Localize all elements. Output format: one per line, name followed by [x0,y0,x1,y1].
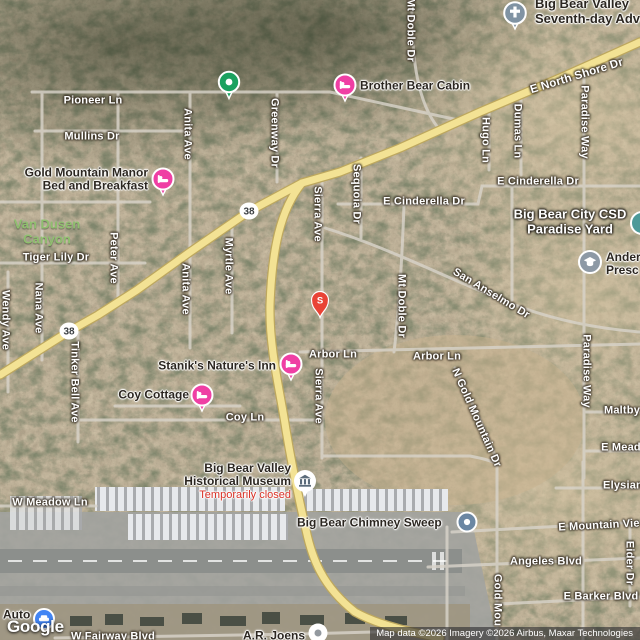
street-label-sierra-ave-s: Sierra Ave [313,368,324,424]
street-label-paradise-way-n: Paradise Way [579,85,590,159]
poi-label-staniks-natures-inn[interactable]: Stanik's Nature's Inn [158,359,276,372]
street-label-pioneer-ln: Pioneer Ln [64,96,123,107]
street-label-peter-ave: Peter Ave [108,232,119,284]
street-label-greenway-dr: Greenway Dr [269,98,280,168]
street-label-nana-ave: Nana Ave [33,283,44,334]
street-label-paradise-way-s: Paradise Way [581,334,592,408]
street-label-sierra-ave-n: Sierra Ave [312,186,323,242]
street-label-gold-mountain: Gold Mou [492,574,503,626]
airport-area [0,487,497,640]
poi-label-brother-bear-cabin[interactable]: Brother Bear Cabin [360,79,470,92]
poi-label-coy-cottage[interactable]: Coy Cottage [118,388,189,401]
chimney-sweep-dot-marker[interactable] [458,513,477,532]
street-label-angeles-blvd: Angeles Blvd [510,557,582,568]
street-label-tinker-bell-ave: Tinker Bell Ave [69,341,80,422]
street-label-mt-doble-dr-s: Mt Doble Dr [396,274,407,338]
street-label-anita-ave-s: Anita Ave [180,263,191,315]
poi-label-adventist-church[interactable]: Big Bear Valley Seventh-day Adve [535,0,640,26]
poi-label-ar-joens[interactable]: A.R. Joens [243,629,305,640]
street-label-hugo-ln: Hugo Ln [480,117,491,163]
street-label-e-cinderella-dr-e: E Cinderella Dr [497,177,579,188]
street-label-arbor-ln-e: Arbor Ln [413,352,461,363]
street-label-coy-ln: Coy Ln [226,413,264,424]
attribution-bar: Map data ©2026 Imagery ©2026 Airbus, Max… [370,627,640,640]
street-label-sequoia-dr: Sequoia Dr [351,164,362,224]
street-label-mullins-dr: Mullins Dr [64,132,119,143]
hangar-row [298,489,448,511]
street-label-dumas-ln: Dumas Ln [512,104,523,159]
street-label-mt-doble-dr-n: Mt Doble Dr [405,0,416,62]
street-label-eider-dr: Eider Dr [624,541,635,585]
street-label-maltby: Maltby [604,406,640,417]
poi-label-big-bear-chimney-sweep[interactable]: Big Bear Chimney Sweep [297,516,442,529]
school-icon[interactable] [579,251,601,273]
google-logo[interactable]: Google [7,618,64,635]
street-label-wendy-ave: Wendy Ave [0,290,11,350]
svg-text:38: 38 [63,327,75,338]
street-label-e-mead: E Mead [601,443,640,454]
poi-label-big-bear-city-csd[interactable]: Big Bear City CSD Paradise Yard [514,207,627,236]
svg-text:38: 38 [243,207,255,218]
hangar-row [128,514,288,540]
street-label-tiger-lily-dr: Tiger Lily Dr [23,253,90,264]
street-label-w-fairway-blvd: W Fairway Blvd [71,632,155,640]
street-label-anita-ave-n: Anita Ave [182,108,193,160]
poi-label-gold-mountain-manor[interactable]: Gold Mountain Manor Bed and Breakfast [25,167,148,194]
street-label-arbor-ln-w: Arbor Ln [309,350,357,361]
map-canvas[interactable]: 38 38 [0,0,640,640]
street-label-e-cinderella-dr-w: E Cinderella Dr [383,197,465,208]
poi-status-temporarily-closed: Temporarily closed [184,489,291,502]
svg-text:S: S [317,296,323,307]
route-shield-38: 38 [240,203,259,220]
poi-label-historical-museum[interactable]: Big Bear Valley Historical Museum Tempor… [184,462,291,502]
street-label-elysian: Elysian [603,481,640,492]
street-label-w-meadow-ln: W Meadow Ln [12,498,88,509]
street-label-myrtle-ave: Myrtle Ave [223,238,234,295]
poi-label-van-dusen-canyon[interactable]: Van Dusen Canyon [14,217,80,246]
route-shield-38: 38 [60,323,79,340]
poi-label-anderson-preschool[interactable]: Ander Presc [606,251,640,278]
street-label-e-barker-blvd: E Barker Blvd [564,592,639,603]
